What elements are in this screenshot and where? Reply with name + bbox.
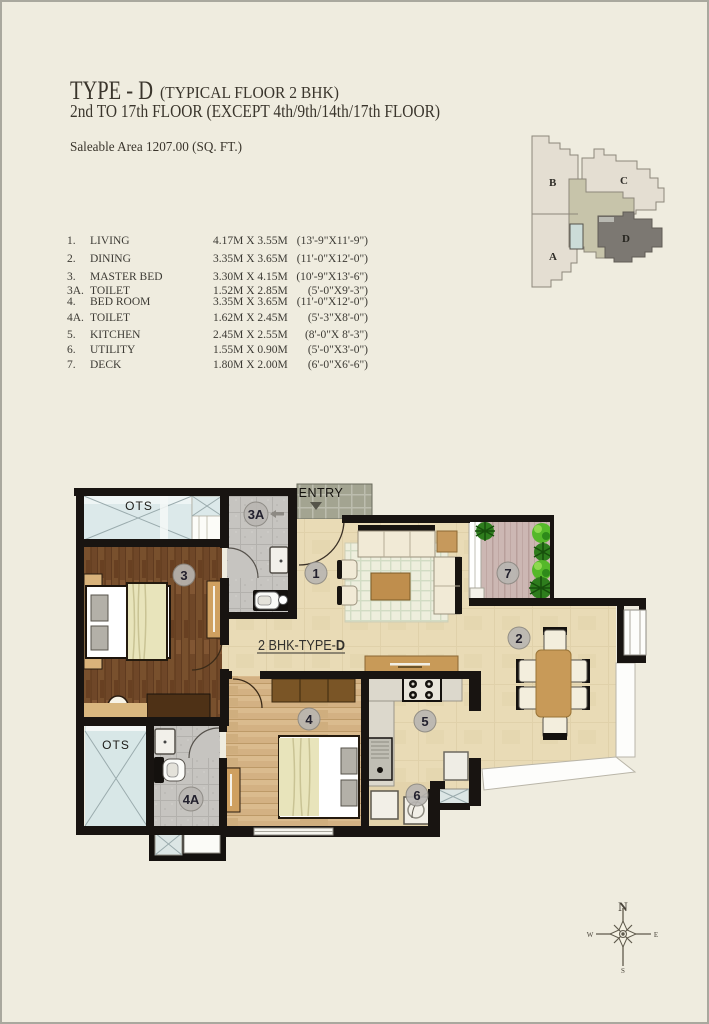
svg-text:5.: 5. bbox=[67, 329, 76, 341]
svg-text:1.: 1. bbox=[67, 235, 76, 247]
svg-text:1.62M X 2.45M: 1.62M X 2.45M bbox=[213, 312, 288, 324]
svg-text:B: B bbox=[549, 177, 557, 189]
svg-text:7: 7 bbox=[504, 566, 511, 581]
svg-text:(5'-3"X8'-0"): (5'-3"X8'-0") bbox=[308, 312, 368, 324]
svg-text:BED ROOM: BED ROOM bbox=[90, 296, 150, 308]
svg-text:D: D bbox=[622, 233, 630, 245]
svg-text:4A.: 4A. bbox=[67, 312, 84, 324]
svg-text:2: 2 bbox=[515, 631, 522, 646]
svg-text:(TYPICAL FLOOR 2 BHK): (TYPICAL FLOOR 2 BHK) bbox=[160, 83, 339, 102]
svg-text:3.30M X 4.15M: 3.30M X 4.15M bbox=[213, 271, 288, 283]
svg-text:1.80M X 2.00M: 1.80M X 2.00M bbox=[213, 359, 288, 371]
svg-text:4: 4 bbox=[305, 712, 313, 727]
svg-text:3A: 3A bbox=[248, 507, 265, 522]
svg-text:TOILET: TOILET bbox=[90, 312, 130, 324]
svg-text:(11'-0"X12'-0"): (11'-0"X12'-0") bbox=[297, 296, 368, 308]
svg-text:W: W bbox=[587, 931, 594, 939]
svg-text:OTS: OTS bbox=[102, 738, 130, 752]
svg-text:3: 3 bbox=[180, 568, 187, 583]
svg-text:(5'-0"X3'-0"): (5'-0"X3'-0") bbox=[308, 344, 368, 356]
svg-text:E: E bbox=[654, 931, 658, 939]
svg-text:N: N bbox=[618, 899, 628, 914]
svg-text:DECK: DECK bbox=[90, 359, 122, 371]
svg-text:1.55M X 0.90M: 1.55M X 0.90M bbox=[213, 344, 288, 356]
svg-text:KITCHEN: KITCHEN bbox=[90, 329, 141, 341]
svg-text:LIVING: LIVING bbox=[90, 235, 130, 247]
svg-text:3.35M X 3.65M: 3.35M X 3.65M bbox=[213, 296, 288, 308]
svg-text:4A: 4A bbox=[183, 792, 200, 807]
svg-text:4.: 4. bbox=[67, 296, 76, 308]
svg-text:(6'-0"X6'-6"): (6'-0"X6'-6") bbox=[308, 359, 368, 371]
svg-text:UTILITY: UTILITY bbox=[90, 344, 136, 356]
svg-text:(11'-0"X12'-0"): (11'-0"X12'-0") bbox=[297, 253, 368, 265]
svg-text:2.45M X 2.55M: 2.45M X 2.55M bbox=[213, 329, 288, 341]
svg-text:7.: 7. bbox=[67, 359, 76, 371]
svg-text:ENTRY: ENTRY bbox=[299, 486, 344, 500]
svg-text:3.35M X 3.65M: 3.35M X 3.65M bbox=[213, 253, 288, 265]
svg-text:(13'-9"X11'-9"): (13'-9"X11'-9") bbox=[297, 235, 368, 247]
svg-text:2 BHK-TYPE-D: 2 BHK-TYPE-D bbox=[258, 637, 345, 654]
svg-text:S: S bbox=[621, 967, 625, 975]
svg-text:OTS: OTS bbox=[125, 499, 153, 513]
svg-text:4.17M X 3.55M: 4.17M X 3.55M bbox=[213, 235, 288, 247]
svg-text:DINING: DINING bbox=[90, 253, 131, 265]
svg-text:2.: 2. bbox=[67, 253, 76, 265]
svg-text:6.: 6. bbox=[67, 344, 76, 356]
svg-text:(10'-9"X13'-6"): (10'-9"X13'-6") bbox=[296, 271, 368, 283]
svg-text:Saleable Area 1207.00 (SQ. FT.: Saleable Area 1207.00 (SQ. FT.) bbox=[70, 139, 242, 154]
svg-text:A: A bbox=[549, 251, 557, 263]
svg-text:6: 6 bbox=[413, 788, 420, 803]
svg-text:C: C bbox=[620, 175, 628, 187]
svg-text:3.: 3. bbox=[67, 271, 76, 283]
svg-text:(8'-0"X 8'-3"): (8'-0"X 8'-3") bbox=[305, 329, 368, 341]
svg-text:MASTER BED: MASTER BED bbox=[90, 271, 163, 283]
svg-text:1: 1 bbox=[312, 566, 319, 581]
svg-text:2nd TO 17th FLOOR (EXCEPT 4th/: 2nd TO 17th FLOOR (EXCEPT 4th/9th/14th/1… bbox=[70, 101, 440, 121]
svg-text:5: 5 bbox=[421, 714, 428, 729]
